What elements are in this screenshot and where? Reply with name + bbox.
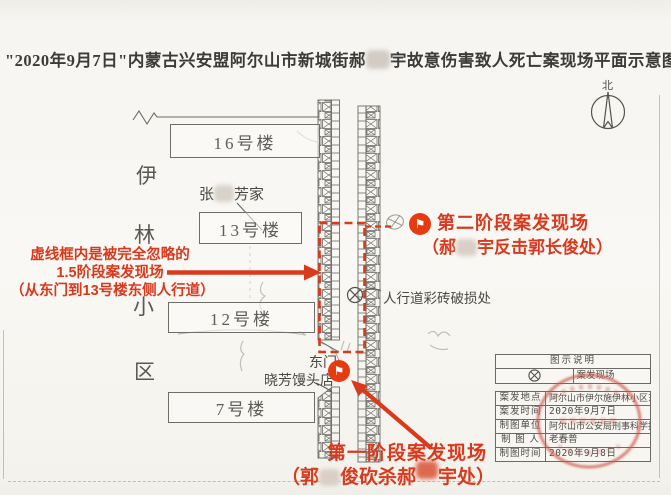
info-value: 阿尔山市公安局刑事科学技术室	[546, 420, 651, 434]
left-wall-upper	[318, 100, 340, 364]
legend-table: 图示说明 案发现场	[495, 354, 651, 384]
district-char-1: 伊	[136, 160, 157, 190]
case-site-symbol-sidewalk	[348, 288, 363, 303]
stage1-annotation-line2: （郭俊砍杀郝宇处）	[281, 461, 495, 489]
legend-entry-label: 案发现场	[573, 369, 651, 384]
crime-scene-diagram-page: "2020年9月7日"内蒙古兴安盟阿尔山市新城街郝宇故意伤害致人死亡案现场平面示…	[0, 0, 671, 495]
building-16: 16号楼	[170, 124, 320, 158]
info-label: 制图单位	[496, 420, 546, 434]
building-13: 13号楼	[199, 212, 302, 244]
pencil-marks	[178, 131, 450, 371]
title-part1: "2020年9月7日"内蒙古兴安盟阿尔山市新城街郝	[5, 51, 366, 70]
right-wall	[358, 106, 380, 462]
case-site-symbol-pencil	[385, 213, 405, 231]
stage15-line2: 1.5阶段案发现场	[10, 264, 210, 282]
stage15-line3: （从东门到13号楼东侧人行道）	[10, 282, 210, 300]
north-compass-icon	[592, 92, 625, 129]
district-char-2: 林	[134, 219, 155, 249]
stage2-annotation-line1: 第二阶段案发现场	[437, 209, 589, 235]
info-value: 2020年9月8日	[546, 448, 651, 462]
title-redaction-blur	[366, 50, 390, 69]
stage2-annotation-line2: （郝宇反击郭长俊处）	[422, 233, 613, 258]
building-7: 7号楼	[168, 392, 315, 423]
title-part2: 宇故意伤害致人死亡案现场平面示意图一	[390, 51, 671, 70]
stage1-flag-badge: ⚑	[328, 360, 350, 382]
info-table: 案发地点 阿尔山市伊尔施伊林小区东门 案发时间 2020年9月7日 制图单位 阿…	[495, 391, 651, 462]
info-value: 阿尔山市伊尔施伊林小区东门	[546, 392, 651, 406]
info-label: 案发地点	[496, 392, 546, 406]
stage1-redaction-blur-1	[319, 469, 340, 486]
stage15-annotation: 虚线框内是被完全忽略的 1.5阶段案发现场 （从东门到13号楼东侧人行道）	[10, 246, 210, 300]
info-value: 老春普	[546, 434, 651, 448]
page-title: "2020年9月7日"内蒙古兴安盟阿尔山市新城街郝宇故意伤害致人死亡案现场平面示…	[5, 47, 669, 71]
district-char-4: 区	[134, 356, 155, 386]
resident-redaction-blur	[214, 185, 234, 202]
resident-home-label: 张芳家	[199, 183, 264, 204]
info-label: 制 图 人	[496, 434, 546, 448]
north-boundary-line	[133, 111, 318, 124]
north-label: 北	[602, 77, 613, 93]
sidewalk-damage-label: 人行道彩砖破损处	[383, 287, 491, 307]
stage2-redaction-blur	[456, 239, 477, 256]
legend-symbol-cell	[496, 369, 574, 384]
bun-shop-label: 晓芳馒头店	[264, 370, 334, 390]
legend-title: 图示说明	[496, 355, 651, 369]
red-dashed-ignored-zone	[320, 223, 393, 352]
stage15-line1: 虚线框内是被完全忽略的	[10, 246, 210, 264]
stage1-redaction-blur-2	[416, 461, 438, 479]
info-label: 案发时间	[496, 406, 546, 420]
building-12: 12号楼	[168, 302, 315, 333]
flag-icon: ⚑	[415, 218, 426, 230]
info-label: 制图时间	[496, 448, 546, 462]
case-site-symbol-icon	[528, 369, 541, 382]
flag-icon: ⚑	[334, 365, 345, 377]
stage2-flag-badge: ⚑	[409, 213, 431, 235]
info-value: 2020年9月7日	[546, 406, 651, 420]
